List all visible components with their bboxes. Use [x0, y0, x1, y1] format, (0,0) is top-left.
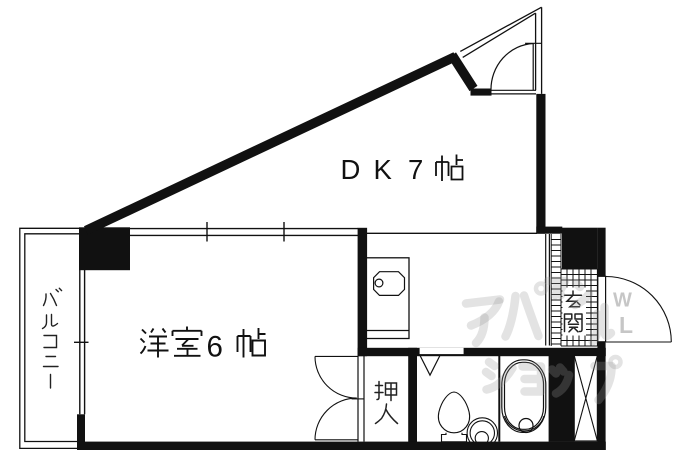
svg-text:K: K: [374, 154, 393, 185]
svg-text:D: D: [341, 154, 361, 185]
svg-text:7: 7: [408, 154, 423, 185]
svg-text:6: 6: [207, 331, 223, 364]
svg-text:W: W: [613, 290, 632, 312]
svg-text:L: L: [619, 312, 633, 338]
